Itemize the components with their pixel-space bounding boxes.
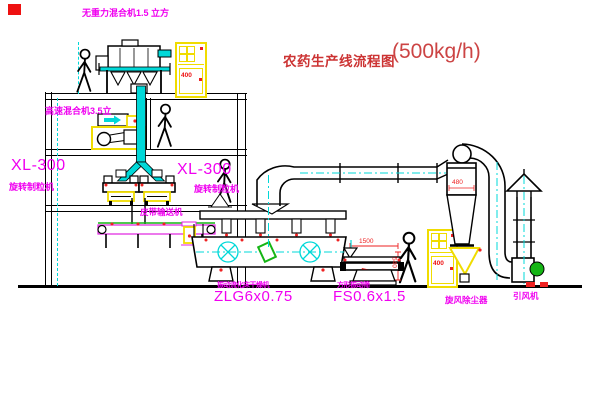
indicator-dot xyxy=(199,78,202,81)
drawing-capacity: (500kg/h) xyxy=(392,40,481,64)
label-high-speed-mixer: 高速混合机3.5立 xyxy=(45,107,112,116)
person-figure xyxy=(77,50,90,92)
ground-line xyxy=(18,285,582,288)
cabinet-vent xyxy=(431,233,439,241)
dryer-feeder xyxy=(181,222,203,245)
cabinet-vent xyxy=(187,46,195,54)
cabinet-vent xyxy=(187,54,195,62)
gravity-free-mixer xyxy=(96,40,171,93)
indicator-dot xyxy=(451,234,454,237)
cabinet-vent xyxy=(439,241,447,249)
label-belt-conveyor: 皮带输送机 xyxy=(140,208,183,217)
cabinet-vent xyxy=(179,46,187,54)
cabinet-marking: 400 xyxy=(433,261,444,268)
person-figure xyxy=(400,233,415,282)
rotary-granulator xyxy=(139,170,175,205)
control-cabinet: 400 xyxy=(427,229,458,288)
indicator-dot xyxy=(450,267,453,270)
label-dryer-model: ZLG6x0.75 xyxy=(214,289,293,304)
indicator-dot xyxy=(200,47,203,50)
belt-conveyor xyxy=(98,223,215,249)
exhaust-stack-and-fan xyxy=(462,144,548,287)
dim-screen-length: 1500 xyxy=(359,239,373,246)
support-column-mid xyxy=(146,98,151,150)
label-screen-model: FS0.6x1.5 xyxy=(333,289,406,304)
centerline-vertical xyxy=(78,42,79,94)
label-granulator-left-name: 旋转制粒机 xyxy=(9,183,54,192)
label-cyclone: 旋风除尘器 xyxy=(445,296,488,305)
label-granulator-center-model: XL-300 xyxy=(177,162,232,178)
granulator-feed-pipe xyxy=(118,86,165,181)
cabinet-marking: 400 xyxy=(181,73,192,80)
label-granulator-center-name: 旋转制粒机 xyxy=(194,185,239,194)
label-gravity-free-mixer: 无重力混合机1.5 立方 xyxy=(82,9,169,18)
cabinet-vent xyxy=(179,54,187,62)
dryer-exhaust-duct xyxy=(252,160,448,250)
person-figure xyxy=(158,105,171,147)
corner-red-mark xyxy=(8,4,21,15)
centerline-vertical xyxy=(57,98,58,286)
cabinet-divider xyxy=(430,252,455,253)
control-cabinet: 400 xyxy=(175,42,207,98)
cabinet-vent xyxy=(431,241,439,249)
label-granulator-left-model: XL-300 xyxy=(11,158,66,174)
cabinet-divider xyxy=(178,64,204,65)
drawing-title: 农药生产线流程图 xyxy=(283,50,395,70)
high-speed-mixer xyxy=(92,114,145,149)
label-fan: 引风机 xyxy=(513,292,539,301)
floor-slab-middle xyxy=(45,149,247,156)
dim-cyclone-width: 480 xyxy=(452,180,463,187)
rotary-granulator xyxy=(103,170,139,205)
cabinet-vent xyxy=(439,233,447,241)
cad-drawing-canvas: 400 400 xyxy=(0,0,600,403)
dim-screen-height: 540 xyxy=(390,257,397,268)
